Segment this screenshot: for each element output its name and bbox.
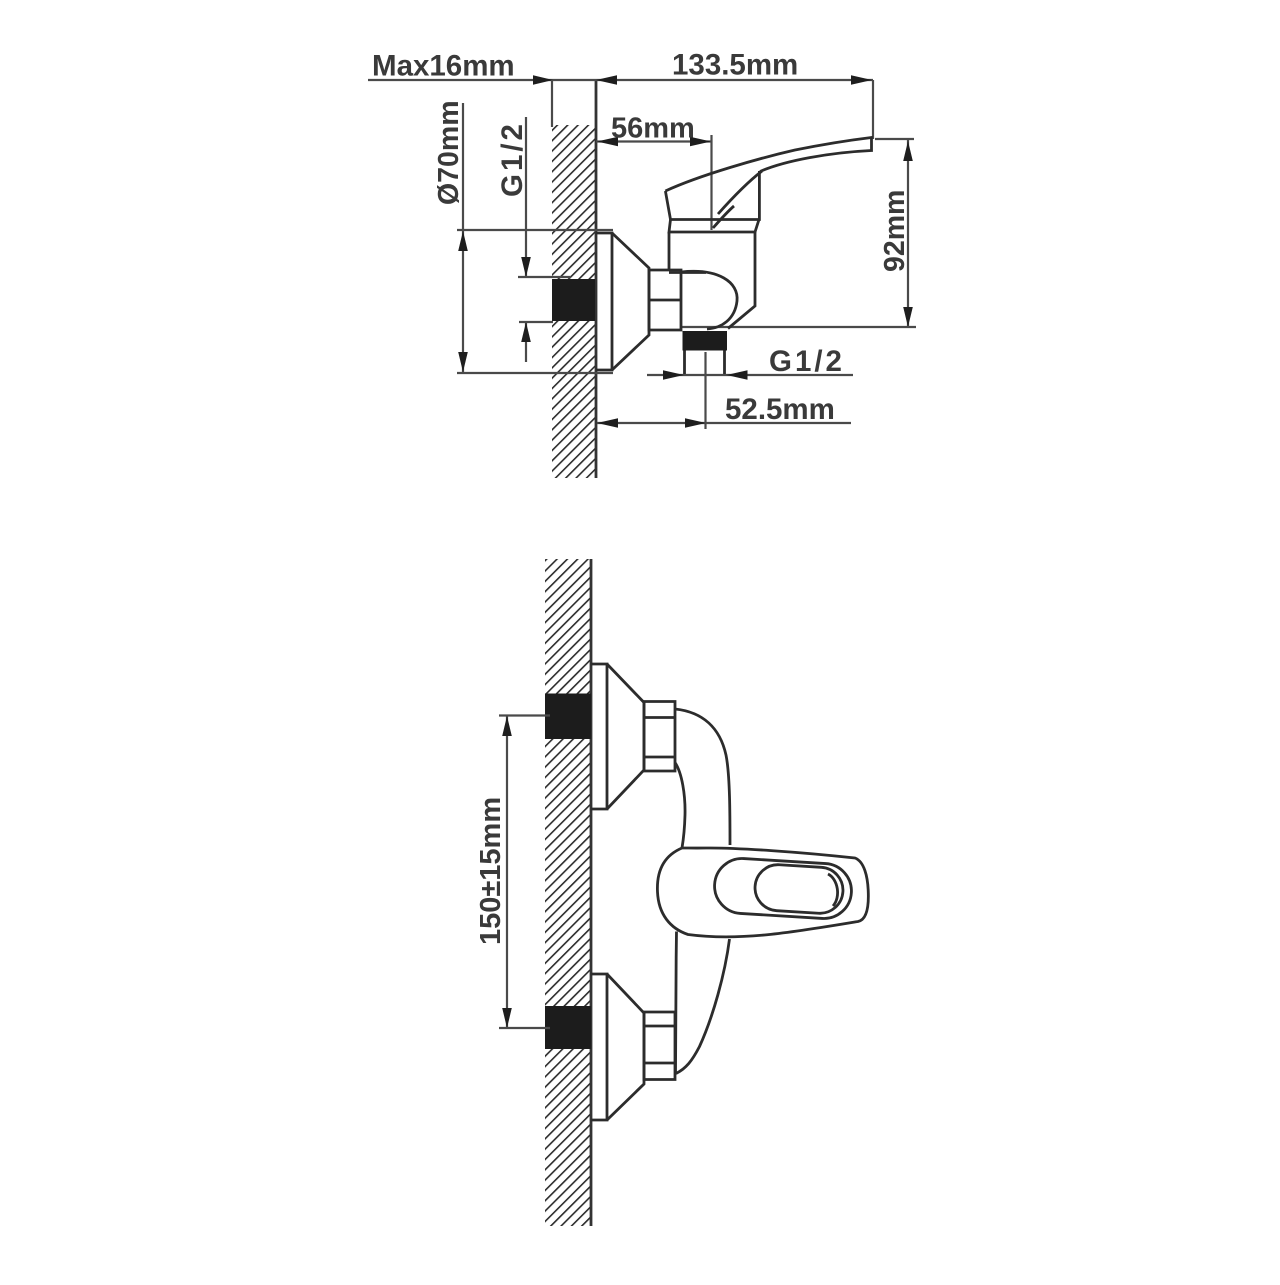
svg-text:52.5mm: 52.5mm (725, 393, 835, 426)
svg-text:133.5mm: 133.5mm (672, 49, 798, 82)
svg-text:G1/2: G1/2 (496, 121, 529, 197)
svg-text:92mm: 92mm (879, 190, 911, 272)
svg-text:56mm: 56mm (611, 113, 695, 145)
svg-text:Max16mm: Max16mm (372, 50, 515, 83)
svg-text:G1/2: G1/2 (769, 345, 845, 378)
svg-text:150±15mm: 150±15mm (475, 797, 507, 945)
svg-text:Ø70mm: Ø70mm (433, 100, 465, 205)
